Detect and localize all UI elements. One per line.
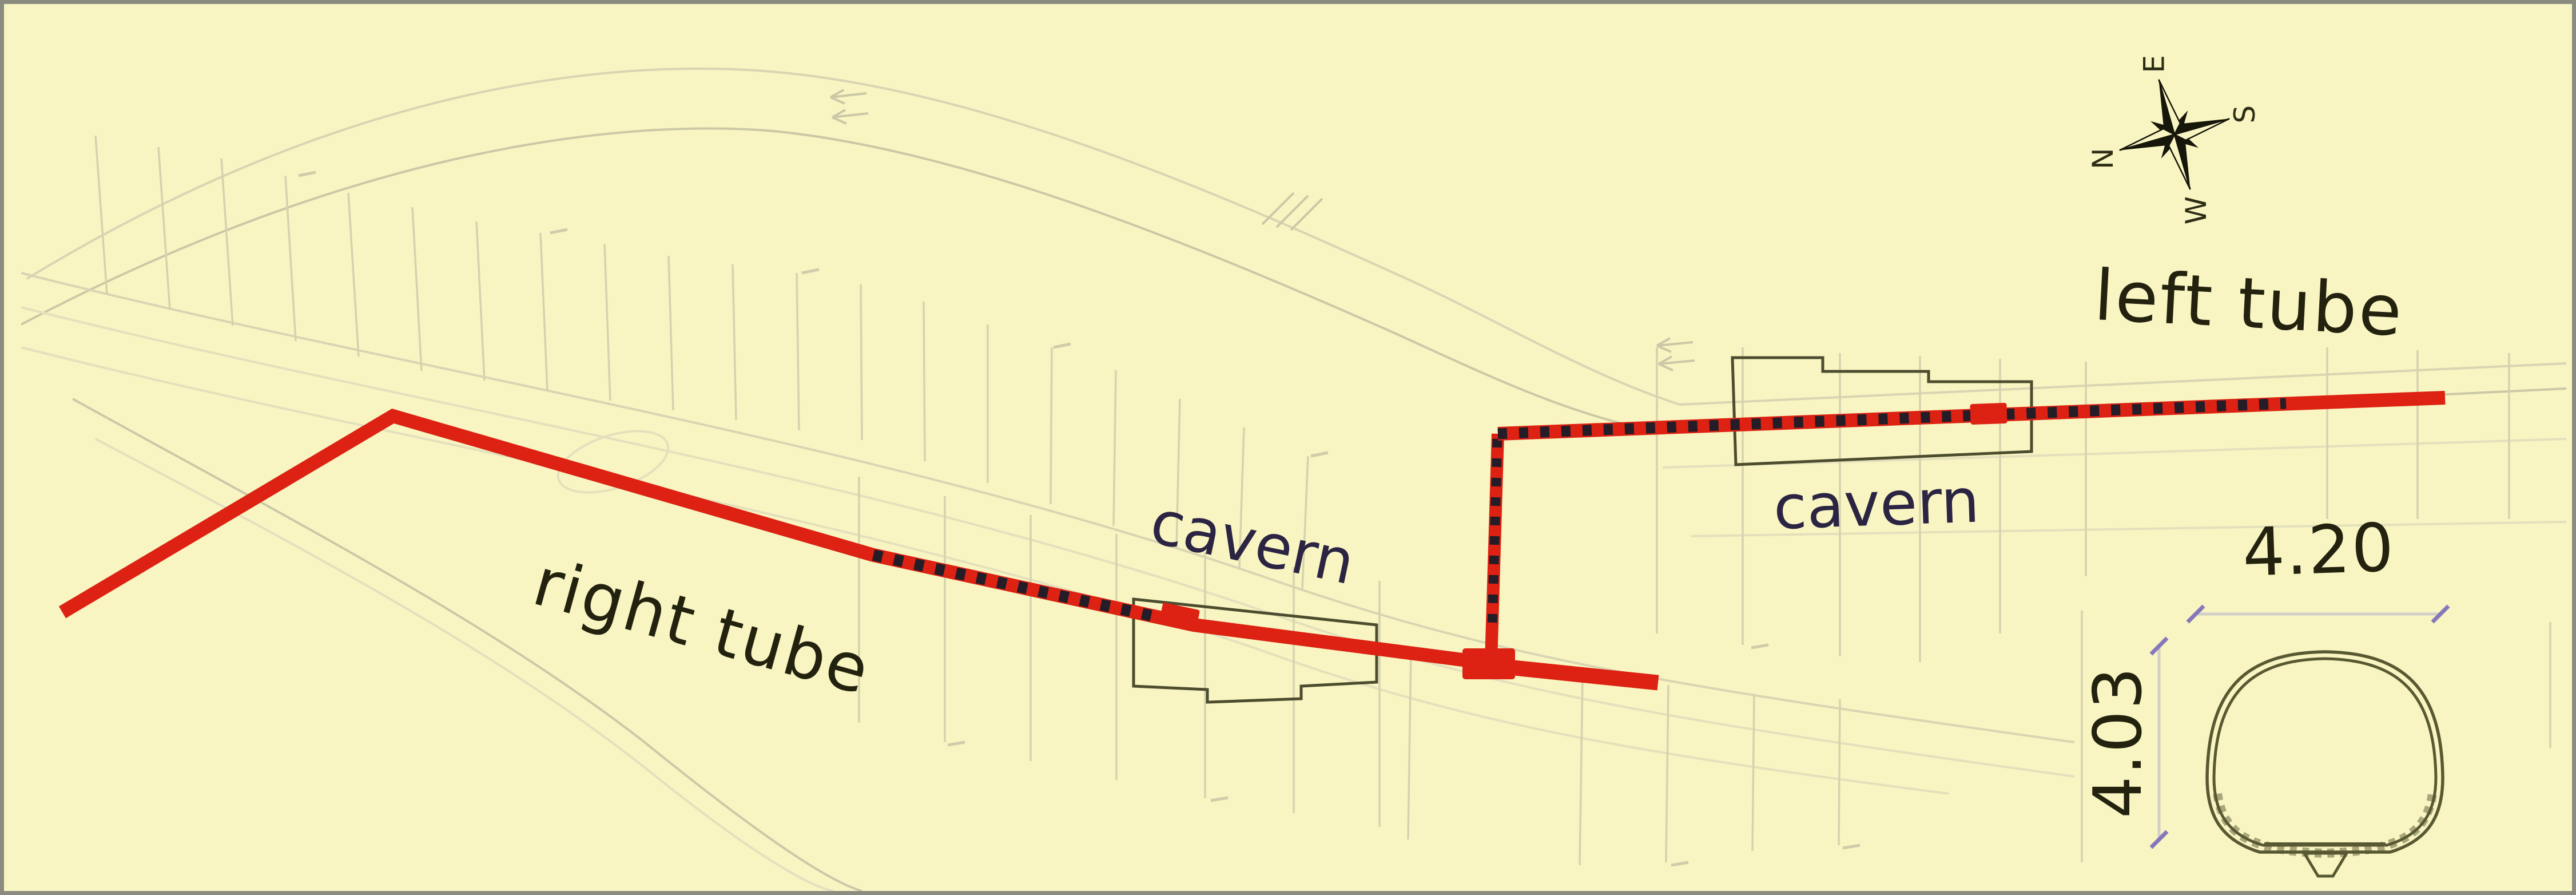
junction-block [1462, 648, 1515, 679]
cross-section [2151, 606, 2448, 876]
basemap-station-ticks [96, 136, 2550, 865]
profile-inner [2214, 659, 2436, 845]
road-direction-arrows [830, 90, 1695, 370]
section-height-label: 4.03 [2084, 671, 2153, 814]
face-marker-left-tube [1970, 403, 2007, 425]
cavern-right-label: cavern [1772, 470, 1981, 538]
compass-label-east: E [2138, 55, 2171, 73]
compass-rose: E S W N [2060, 26, 2289, 254]
cross-passage-line [1491, 434, 1498, 662]
profile-outer [2207, 652, 2443, 852]
section-width-label: 4.20 [2241, 515, 2396, 587]
right-tube-stub [1514, 668, 1658, 683]
compass-label-north: N [2086, 148, 2120, 169]
plan-drawing: E S W N [4, 4, 2572, 891]
compass-label-south: S [2228, 105, 2261, 124]
tunnel-plan-figure: E S W N right tube left tube cavern cave… [0, 0, 2576, 895]
left-tube-label: left tube [2093, 260, 2406, 346]
compass-star [2104, 64, 2245, 205]
compass-label-west: W [2180, 196, 2213, 224]
